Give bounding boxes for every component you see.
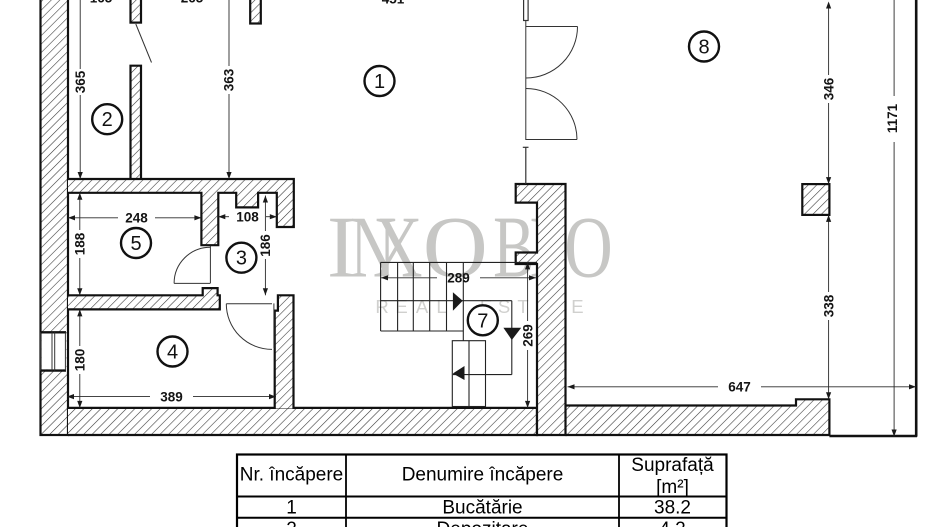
svg-text:289: 289 [447, 271, 470, 286]
svg-text:3: 3 [236, 248, 247, 270]
svg-text:R: R [375, 296, 388, 317]
svg-text:2: 2 [286, 519, 297, 527]
svg-text:A: A [416, 296, 429, 317]
svg-text:365: 365 [73, 70, 88, 93]
svg-text:2: 2 [102, 109, 113, 131]
svg-text:451: 451 [382, 0, 405, 7]
svg-text:338: 338 [821, 294, 836, 317]
svg-text:647: 647 [728, 380, 751, 395]
svg-text:[m²]: [m²] [656, 477, 689, 498]
svg-text:4.2: 4.2 [659, 519, 685, 527]
svg-text:4: 4 [167, 342, 178, 364]
svg-text:186: 186 [258, 234, 273, 257]
svg-text:Suprafață: Suprafață [631, 455, 714, 476]
svg-text:188: 188 [73, 232, 88, 255]
svg-text:T: T [517, 296, 528, 317]
svg-text:1171: 1171 [885, 103, 900, 133]
svg-text:5: 5 [130, 233, 141, 255]
svg-text:389: 389 [160, 389, 183, 404]
svg-text:180: 180 [73, 349, 88, 372]
svg-text:346: 346 [821, 77, 836, 100]
svg-text:363: 363 [222, 68, 237, 91]
svg-text:1: 1 [374, 71, 385, 93]
svg-text:L: L [436, 296, 446, 317]
svg-text:38.2: 38.2 [654, 498, 691, 519]
svg-text:165: 165 [90, 0, 113, 6]
svg-text:S: S [498, 296, 510, 317]
svg-text:E: E [571, 296, 583, 317]
svg-text:1: 1 [286, 498, 297, 519]
svg-text:Bucătărie: Bucătărie [442, 498, 522, 519]
svg-text:Denumire încăpere: Denumire încăpere [402, 465, 564, 486]
svg-text:7: 7 [477, 310, 488, 332]
svg-text:269: 269 [520, 324, 535, 347]
svg-text:265: 265 [181, 0, 204, 6]
svg-text:248: 248 [125, 211, 148, 226]
svg-text:108: 108 [236, 209, 259, 224]
svg-text:O: O [564, 198, 612, 296]
svg-text:Depozitare: Depozitare [437, 519, 529, 527]
svg-text:8: 8 [698, 37, 709, 59]
svg-text:Nr. încăpere: Nr. încăpere [240, 465, 344, 486]
